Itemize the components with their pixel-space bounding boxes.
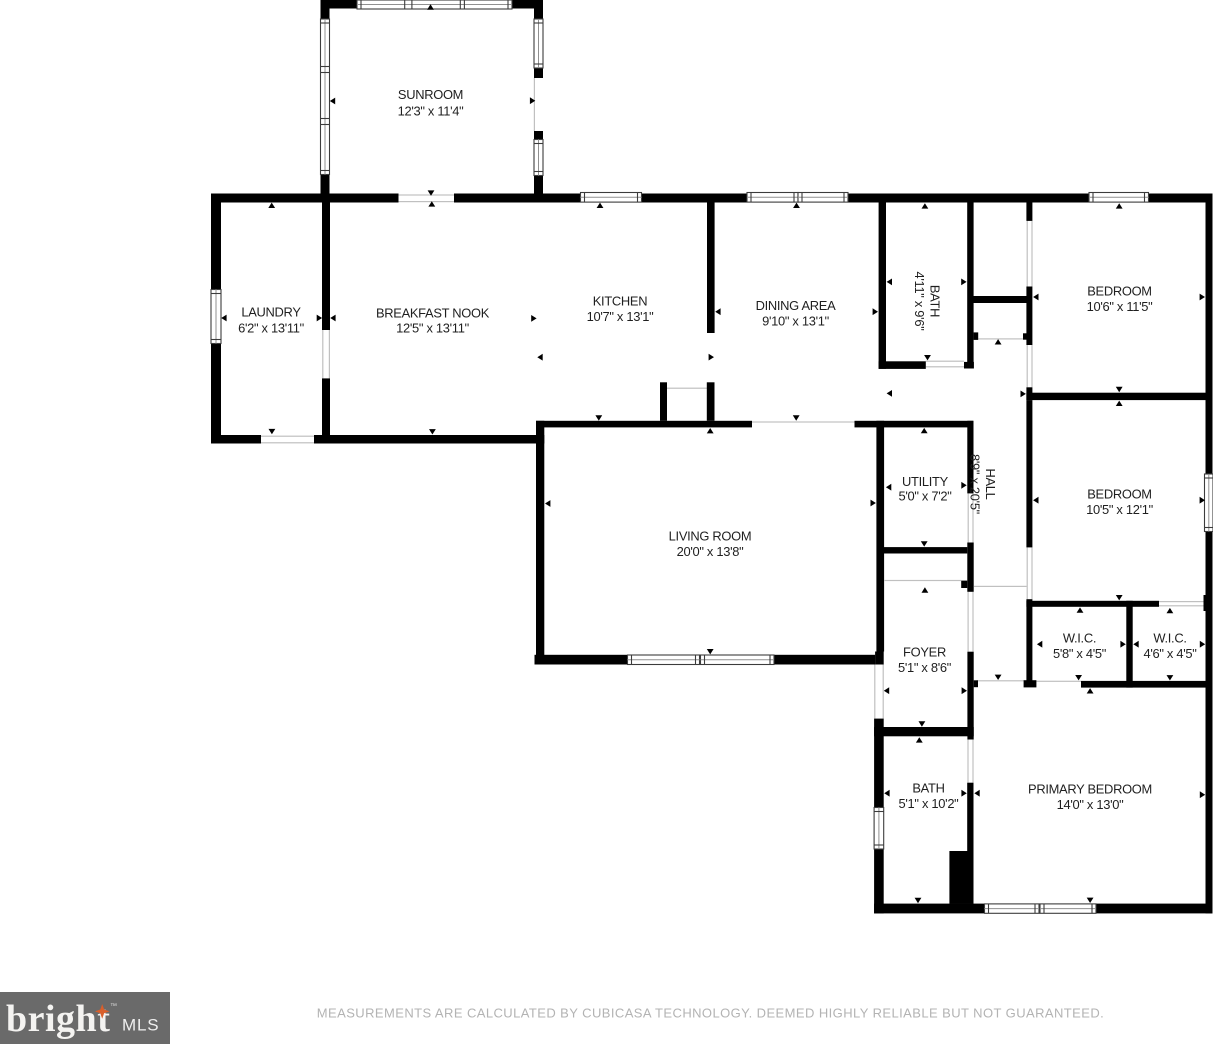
- svg-text:6'2" x 13'11": 6'2" x 13'11": [238, 320, 305, 335]
- svg-text:BATH: BATH: [912, 780, 944, 795]
- svg-text:bright: bright: [6, 998, 110, 1040]
- svg-text:5'1" x 8'6": 5'1" x 8'6": [898, 660, 952, 675]
- svg-text:8'9" x 20'5": 8'9" x 20'5": [968, 454, 983, 515]
- svg-text:LIVING ROOM: LIVING ROOM: [669, 528, 752, 543]
- svg-text:4'11" x 9'6": 4'11" x 9'6": [912, 272, 927, 332]
- svg-text:MEASUREMENTS ARE CALCULATED BY: MEASUREMENTS ARE CALCULATED BY CUBICASA …: [317, 1006, 1104, 1021]
- svg-text:12'5" x 13'11": 12'5" x 13'11": [396, 320, 469, 335]
- svg-text:MLS: MLS: [122, 1016, 159, 1035]
- svg-text:BEDROOM: BEDROOM: [1087, 486, 1152, 501]
- svg-text:10'5" x 12'1": 10'5" x 12'1": [1086, 502, 1154, 517]
- svg-text:FOYER: FOYER: [903, 644, 946, 659]
- svg-text:BEDROOM: BEDROOM: [1087, 283, 1152, 298]
- svg-text:™: ™: [110, 1003, 117, 1010]
- svg-text:BREAKFAST NOOK: BREAKFAST NOOK: [376, 305, 490, 320]
- svg-text:12'3" x 11'4": 12'3" x 11'4": [398, 103, 465, 118]
- svg-text:LAUNDRY: LAUNDRY: [241, 304, 301, 319]
- svg-text:20'0" x 13'8": 20'0" x 13'8": [677, 544, 745, 559]
- svg-text:5'1" x 10'2": 5'1" x 10'2": [899, 796, 960, 811]
- svg-text:5'8" x 4'5": 5'8" x 4'5": [1053, 646, 1107, 661]
- svg-text:BATH: BATH: [928, 285, 943, 317]
- svg-text:HALL: HALL: [983, 468, 998, 499]
- svg-text:4'6" x 4'5": 4'6" x 4'5": [1143, 646, 1197, 661]
- svg-text:PRIMARY BEDROOM: PRIMARY BEDROOM: [1028, 781, 1152, 796]
- svg-text:SUNROOM: SUNROOM: [398, 87, 463, 102]
- svg-text:W.I.C.: W.I.C.: [1153, 630, 1186, 645]
- svg-text:KITCHEN: KITCHEN: [593, 293, 647, 308]
- svg-text:5'0" x 7'2": 5'0" x 7'2": [898, 488, 952, 503]
- svg-text:W.I.C.: W.I.C.: [1063, 630, 1096, 645]
- svg-text:10'6" x 11'5": 10'6" x 11'5": [1087, 299, 1154, 314]
- svg-text:DINING AREA: DINING AREA: [756, 298, 836, 313]
- svg-text:9'10" x 13'1": 9'10" x 13'1": [762, 313, 830, 328]
- svg-text:14'0" x 13'0": 14'0" x 13'0": [1057, 797, 1125, 812]
- svg-text:UTILITY: UTILITY: [902, 474, 949, 489]
- svg-text:10'7" x 13'1": 10'7" x 13'1": [587, 309, 655, 324]
